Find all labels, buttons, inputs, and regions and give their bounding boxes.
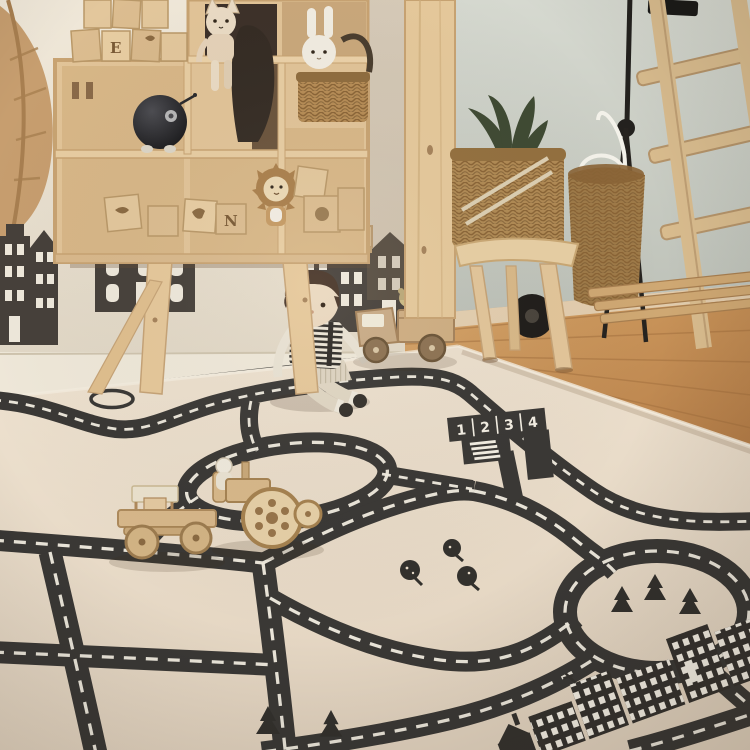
- scene-canvas: 1 2 3 4: [0, 0, 750, 750]
- playroom-photo: 1 2 3 4: [0, 0, 750, 750]
- vignette-overlay: [0, 0, 750, 750]
